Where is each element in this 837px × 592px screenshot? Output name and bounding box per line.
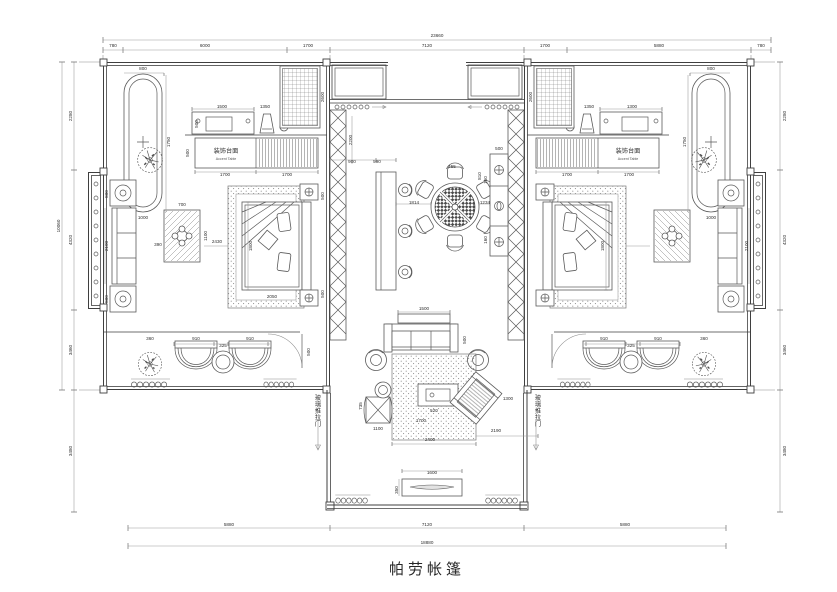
dim-label: 2400 xyxy=(425,437,436,442)
dim-label: 810 xyxy=(477,172,482,180)
dim-label: 1750 xyxy=(682,136,687,147)
dim-label: 800 xyxy=(104,295,109,303)
dim-label: 1800 xyxy=(248,240,253,251)
dim-label: 1100 xyxy=(203,231,208,241)
dim-label: 1350 xyxy=(584,104,595,109)
dim-label: 500 xyxy=(320,192,325,200)
dim-label: Accent Table xyxy=(216,157,237,161)
center-hall xyxy=(327,116,538,509)
dim-label: 1700 xyxy=(282,172,293,177)
dim-label: 2280 xyxy=(782,110,787,121)
dim-label: 6000 xyxy=(200,43,211,48)
dim-label: 1750 xyxy=(166,136,171,147)
dim-label: 5880 xyxy=(654,43,665,48)
dim-label: 800 xyxy=(104,190,109,198)
dim-label: 3460 xyxy=(68,344,73,355)
dim-label: 1814 xyxy=(409,200,420,205)
tv-console xyxy=(402,479,462,496)
sofa xyxy=(384,324,458,352)
dim-label: 5880 xyxy=(620,522,631,527)
dim-label: 900 xyxy=(348,159,356,164)
dim-label: 1700 xyxy=(416,418,427,423)
dim-label: 1300 xyxy=(627,104,638,109)
dim-label: 7120 xyxy=(422,522,433,527)
dim-label: 360 xyxy=(146,336,154,341)
dim-label: 1700 xyxy=(220,172,231,177)
room-label: 玻璃推拉门 xyxy=(315,394,321,428)
dimension-labels: 2366078060001700712017005880780588071205… xyxy=(56,33,787,545)
dim-label: 1700 xyxy=(303,43,314,48)
dim-label: 910 xyxy=(192,336,200,341)
right-wing xyxy=(427,59,766,510)
dim-label: 500 xyxy=(462,336,467,344)
room-label: 玻璃推拉门 xyxy=(535,394,541,428)
dim-label: 1800 xyxy=(600,240,605,251)
dim-label: 500 xyxy=(320,290,325,298)
dim-label: 360 xyxy=(700,336,708,341)
dim-label: 2430 xyxy=(212,239,223,244)
dim-label: 2100 xyxy=(744,240,749,251)
dim-label: 2200 xyxy=(348,134,353,145)
dim-label: 3460 xyxy=(782,344,787,355)
dimension-lines xyxy=(59,37,783,549)
dim-label: 1300 xyxy=(503,396,514,401)
dim-label: 700 xyxy=(178,202,186,207)
dim-label: 2190 xyxy=(491,428,502,433)
floor-plan-canvas: 2366078060001700712017005880780588071205… xyxy=(0,0,837,592)
dim-label: 1700 xyxy=(540,43,551,48)
floorplan-page: 2366078060001700712017005880780588071205… xyxy=(0,0,837,592)
dim-label: 1350 xyxy=(260,104,271,109)
dim-label: 5880 xyxy=(224,522,235,527)
dim-label: 520 xyxy=(430,408,438,413)
dim-label: 590 xyxy=(373,159,381,164)
dim-label: 23660 xyxy=(431,33,444,38)
dim-label: 800 xyxy=(139,66,147,71)
dining-table xyxy=(431,183,479,231)
dim-label: 800 xyxy=(707,66,715,71)
dim-label: 10060 xyxy=(56,219,61,232)
dim-label: 160 xyxy=(483,236,488,244)
dim-label: 4320 xyxy=(782,234,787,245)
room-label: 装饰台面 xyxy=(616,147,641,155)
bar-counter xyxy=(376,172,396,290)
dim-label: 1600 xyxy=(427,470,438,475)
side-table xyxy=(375,382,391,398)
dim-label: 1700 xyxy=(562,172,573,177)
dim-label: 160 xyxy=(483,176,488,184)
dim-label: 1000 xyxy=(706,215,717,220)
dim-label: 2600 xyxy=(320,91,325,102)
dim-label: 500 xyxy=(495,146,503,151)
dim-label: 1100 xyxy=(373,426,383,431)
dim-label: 735 xyxy=(358,402,363,410)
dim-label: 1500 xyxy=(217,104,228,109)
console-table xyxy=(490,154,508,256)
dim-label: 1700 xyxy=(624,172,635,177)
dim-label: 2600 xyxy=(528,91,533,102)
dim-label: 910 xyxy=(654,336,662,341)
dim-label: 780 xyxy=(757,43,765,48)
dim-label: 780 xyxy=(109,43,117,48)
dim-label: 1500 xyxy=(419,306,430,311)
dim-label: 7120 xyxy=(422,43,433,48)
dim-label: 1234 xyxy=(480,200,491,205)
drawing-title: 帕劳帐篷 xyxy=(389,560,465,578)
room-label: 装饰台面 xyxy=(214,147,239,155)
dim-label: 325 xyxy=(627,343,635,348)
dim-label: 500 xyxy=(306,348,311,356)
dim-label: 2280 xyxy=(68,110,73,121)
swivel-chair xyxy=(366,350,387,371)
dim-label: 390 xyxy=(154,242,162,247)
dim-label: 500 xyxy=(185,149,190,157)
dim-label: 3480 xyxy=(782,445,787,456)
dim-label: 910 xyxy=(600,336,608,341)
dim-label: 18880 xyxy=(421,540,434,545)
dim-label: 2100 xyxy=(104,240,109,251)
dim-label: 2050 xyxy=(267,294,278,299)
dim-label: 350 xyxy=(394,486,399,494)
dim-label: 455 xyxy=(448,164,456,169)
bench xyxy=(364,397,392,423)
dim-label: 325 xyxy=(219,343,227,348)
dim-label: 3480 xyxy=(68,445,73,456)
dim-label: 910 xyxy=(246,336,254,341)
dim-label: Accent Table xyxy=(618,157,639,161)
drawing: 2366078060001700712017005880780588071205… xyxy=(56,33,787,578)
dim-label: 1000 xyxy=(138,215,149,220)
dim-label: 500 xyxy=(194,120,199,128)
dim-label: 4320 xyxy=(68,234,73,245)
